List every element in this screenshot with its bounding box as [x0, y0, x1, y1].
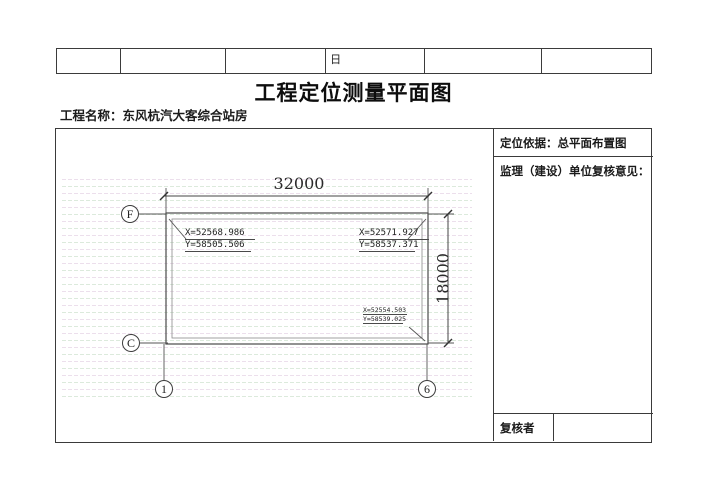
header-cell: [121, 49, 227, 73]
grid-bubble-C: C: [122, 334, 140, 352]
dimension-height-text: 18000: [434, 239, 449, 319]
leader-bottom-right: [409, 327, 425, 341]
project-name-line: 工程名称：东风杭汽大客综合站房: [60, 105, 248, 124]
header-cell-date: 日: [326, 49, 425, 73]
header-cell: [57, 49, 121, 73]
reviewer-label: 复核者: [494, 414, 554, 441]
coord-y: Y=58505.506: [185, 240, 251, 252]
page-title: 工程定位测量平面图: [0, 77, 707, 107]
positioning-basis: 定位依据：总平面布置图: [494, 129, 653, 157]
grid-bubble-1: 1: [155, 380, 173, 398]
coord-x: X=52554.503: [363, 306, 407, 315]
header-cell: [425, 49, 543, 73]
info-panel: 定位依据：总平面布置图 监理（建设）单位复核意见： 复核者: [493, 129, 653, 441]
dimension-width-text: 32000: [254, 174, 344, 193]
coord-label-top-left: X=52568.986 Y=58505.506: [185, 228, 255, 252]
reviewer-value-cell: [554, 414, 653, 441]
survey-record-sheet: 日 工程定位测量平面图 工程名称：东风杭汽大客综合站房: [0, 0, 707, 500]
supervisor-review-section: 监理（建设）单位复核意见：: [494, 157, 653, 413]
coord-x: X=52571.927: [359, 228, 429, 240]
coord-y: Y=58539.025: [363, 315, 403, 324]
header-table: 日: [56, 48, 652, 74]
project-name-label: 工程名称：: [60, 109, 123, 123]
coord-y: Y=58537.371: [359, 240, 415, 252]
site-plan-drawing: 32000 18000 F C 1 6 X=52568.986 Y=58505.…: [56, 129, 493, 441]
reviewer-row: 复核者: [494, 413, 653, 441]
header-cell: [542, 49, 651, 73]
main-frame: 32000 18000 F C 1 6 X=52568.986 Y=58505.…: [55, 128, 652, 443]
leader-top-left: [169, 219, 186, 239]
header-cell: [226, 49, 326, 73]
coord-label-bottom-right: X=52554.503 Y=58539.025: [363, 306, 407, 324]
coord-label-top-right: X=52571.927 Y=58537.371: [359, 228, 429, 252]
grid-bubble-6: 6: [418, 380, 436, 398]
coord-x: X=52568.986: [185, 228, 255, 240]
project-name-value: 东风杭汽大客综合站房: [123, 109, 248, 123]
grid-bubble-F: F: [121, 205, 139, 223]
